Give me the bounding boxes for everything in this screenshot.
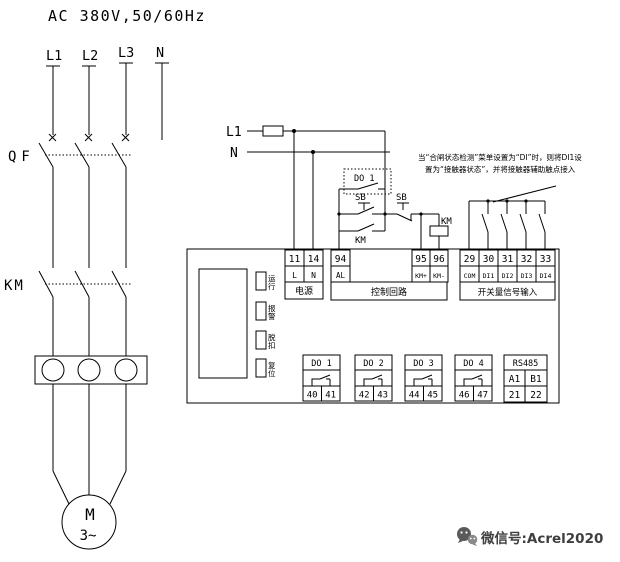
terminal-a1: A1	[509, 374, 521, 385]
terminal-94-signal: AL	[336, 271, 346, 280]
power-group-label: 电源	[295, 285, 313, 297]
di-switch-1	[482, 201, 488, 250]
led-4	[256, 359, 266, 377]
current-transformers	[35, 356, 147, 384]
do-output-1: DO 1 40 41	[303, 355, 340, 401]
do2-label: DO 2	[363, 359, 383, 369]
note-leader-line	[493, 186, 556, 202]
terminal-b1: B1	[530, 374, 542, 385]
terminal-21: 21	[509, 390, 521, 401]
wechat-icon	[457, 527, 477, 546]
stop-button: SB	[396, 193, 439, 221]
terminal-96: 96	[433, 254, 445, 265]
control-loop-group-label: 控制回路	[371, 286, 407, 298]
supply-wires-upper	[53, 63, 162, 140]
terminal-41: 41	[325, 391, 336, 401]
led-1	[256, 272, 266, 290]
breaker-contact-cross-marks	[49, 134, 129, 141]
terminal-33: 33	[540, 254, 551, 265]
motor-phase: 3~	[80, 528, 97, 544]
terminal-95-signal: KM+	[415, 272, 427, 280]
terminal-30-signal: DI1	[483, 272, 495, 280]
terminal-22: 22	[530, 390, 541, 401]
terminal-29-signal: COM	[464, 272, 476, 280]
wires-km-to-ct	[53, 297, 126, 356]
terminal-group-di: 29 30 31 32 33 COM DI1 DI2 DI3 DI4 开关量信号…	[460, 250, 555, 300]
motor-letter: M	[85, 505, 95, 524]
fuse	[263, 126, 283, 136]
terminal-14: 14	[308, 254, 320, 265]
phase-label-n: N	[156, 45, 164, 61]
terminal-46: 46	[459, 391, 470, 401]
terminal-31-signal: DI2	[502, 272, 514, 280]
rs485-block: RS485 A1 B1 21 22	[504, 355, 547, 402]
feed-label-l1: L1	[226, 125, 242, 140]
led-4-label-bottom: 位	[268, 368, 276, 378]
terminal-group-power: 11 14 L N 电源	[285, 250, 323, 299]
relay-display	[199, 269, 247, 378]
do-output-4: DO 4 46 47	[455, 355, 492, 401]
terminal-11-signal: L	[292, 271, 297, 280]
wiring-diagram: AC 380V,50/60Hz L1 L2 L3 N QF	[0, 0, 620, 562]
motor: M 3~	[53, 384, 126, 549]
breaker-qf: QF	[8, 134, 132, 268]
terminal-33-signal: DI4	[540, 272, 552, 280]
ct-ring-3	[115, 359, 137, 381]
wiring-diagram-page: AC 380V,50/60Hz L1 L2 L3 N QF	[0, 0, 620, 562]
terminal-11: 11	[289, 254, 301, 265]
breaker-label: QF	[8, 149, 35, 165]
di-switch-2	[501, 201, 507, 250]
phase-label-l3: L3	[118, 45, 134, 61]
wires-qf-to-km	[53, 167, 126, 268]
do1-feedback-contact: DO 1	[339, 169, 391, 194]
di-group-label: 开关量信号输入	[478, 287, 538, 298]
do-output-3: DO 3 44 45	[405, 355, 442, 401]
relay-device: 运 行 报 警 脱 扣 复 位 11 14 L N 电源 94 AL 95 96…	[187, 249, 559, 403]
annotation-note: 当“合闸状态检测”菜单设置为“DI”时，则将DI1设 置为“接触器状态”，并将接…	[418, 152, 582, 202]
do1-label: DO 1	[311, 359, 331, 369]
km-coil-label: KM	[441, 217, 452, 227]
watermark-text: 微信号:Acrel2020	[480, 530, 603, 547]
contactor-km: KM	[4, 271, 132, 356]
breaker-blades	[39, 143, 132, 167]
km-coil-symbol	[430, 226, 448, 236]
ct-ring-1	[42, 359, 64, 381]
terminal-14-signal: N	[311, 271, 316, 280]
led-2	[256, 302, 266, 320]
feed-label-n: N	[230, 146, 238, 161]
do1-box-label: DO 1	[354, 174, 374, 184]
led-1-label-bottom: 行	[268, 281, 276, 291]
start-button: SB	[337, 193, 397, 216]
wires-ct-to-motor	[53, 384, 126, 504]
terminal-30: 30	[483, 254, 495, 265]
rs485-label: RS485	[513, 359, 539, 369]
terminal-29: 29	[464, 254, 476, 265]
control-feed: L1 N	[226, 125, 390, 250]
terminal-45: 45	[427, 391, 438, 401]
di-input-switches	[469, 199, 545, 250]
note-line-2: 置为“接触器状态”，并将接触器辅助触点接入	[425, 164, 576, 174]
terminal-96-signal: KM-	[433, 272, 445, 280]
km-aux-label: KM	[355, 236, 366, 246]
di-switch-3	[520, 201, 526, 250]
stop-button-label: SB	[396, 193, 407, 203]
contactor-blades	[39, 271, 132, 297]
terminal-44: 44	[409, 391, 420, 401]
terminal-95: 95	[415, 254, 426, 265]
phase-label-l2: L2	[82, 48, 98, 64]
km-latching-contact: KM	[339, 224, 385, 246]
terminal-32: 32	[521, 254, 532, 265]
phase-label-l1: L1	[46, 48, 62, 64]
start-button-label: SB	[355, 193, 366, 203]
control-circuit: DO 1 SB KM SB	[337, 131, 452, 250]
terminal-32-signal: DI3	[521, 272, 533, 280]
led-2-label-bottom: 警	[268, 311, 276, 321]
terminal-31: 31	[502, 254, 514, 265]
terminal-94: 94	[335, 254, 347, 265]
power-supply-section: AC 380V,50/60Hz L1 L2 L3 N	[46, 7, 206, 140]
supply-terminal-ticks	[46, 63, 169, 66]
led-3-label-bottom: 扣	[268, 340, 276, 350]
terminal-43: 43	[377, 391, 388, 401]
do4-label: DO 4	[463, 359, 483, 369]
km-coil: KM	[430, 214, 452, 250]
supply-title: AC 380V,50/60Hz	[48, 7, 206, 25]
ct-ring-2	[78, 359, 100, 381]
terminal-40: 40	[307, 391, 318, 401]
do3-label: DO 3	[413, 359, 433, 369]
terminal-47: 47	[477, 391, 488, 401]
note-line-1: 当“合闸状态检测”菜单设置为“DI”时，则将DI1设	[418, 152, 582, 162]
led-3	[256, 331, 266, 349]
contactor-label: KM	[4, 278, 25, 294]
di-switch-4	[539, 201, 545, 250]
terminal-42: 42	[359, 391, 370, 401]
watermark: 微信号:Acrel2020	[457, 527, 603, 547]
do-output-2: DO 2 42 43	[355, 355, 392, 401]
